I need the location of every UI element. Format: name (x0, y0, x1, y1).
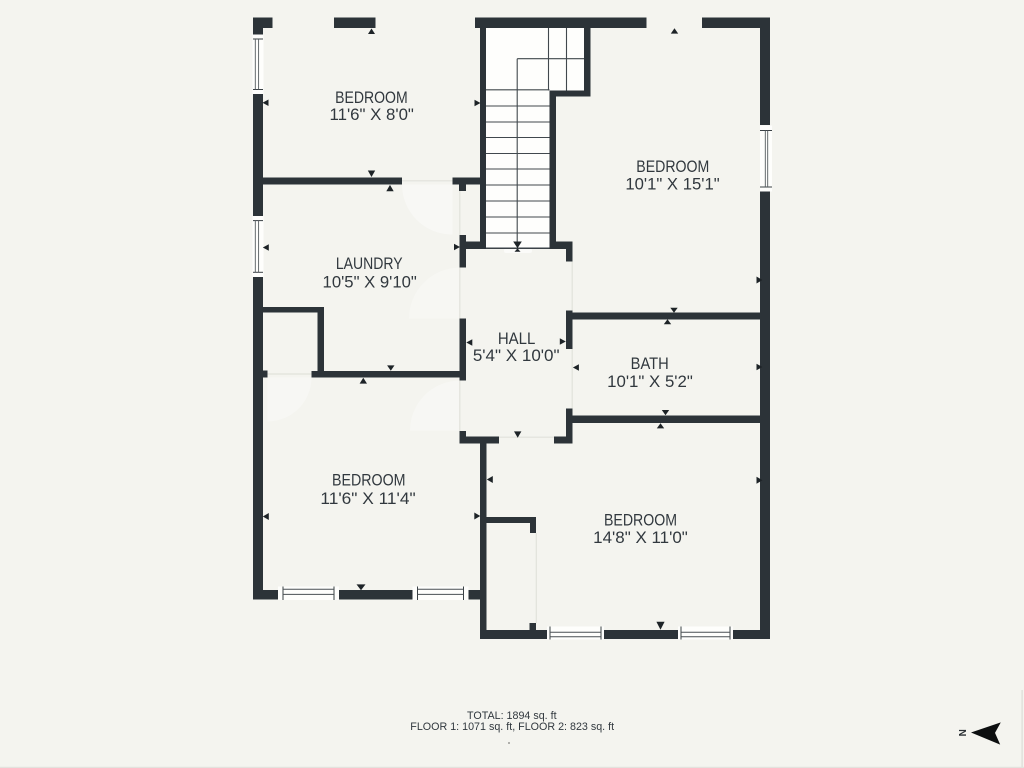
svg-text:N: N (958, 729, 969, 736)
svg-text:HALL: HALL (498, 330, 536, 348)
svg-text:FLOOR 1: 1071 sq. ft, FLOOR 2:: FLOOR 1: 1071 sq. ft, FLOOR 2: 823 sq. f… (410, 721, 614, 733)
svg-text:11'6" X 8'0": 11'6" X 8'0" (330, 106, 415, 124)
svg-text:BEDROOM: BEDROOM (332, 472, 406, 490)
svg-text:BATH: BATH (631, 355, 669, 373)
svg-text:11'6" X 11'4": 11'6" X 11'4" (320, 490, 416, 508)
svg-text:10'1" X 5'2": 10'1" X 5'2" (607, 373, 693, 391)
svg-text:LAUNDRY: LAUNDRY (336, 255, 403, 273)
svg-text:TOTAL: 1894 sq. ft: TOTAL: 1894 sq. ft (467, 710, 557, 722)
svg-text:10'1" X 15'1": 10'1" X 15'1" (625, 175, 720, 193)
svg-text:10'5" X 9'10": 10'5" X 9'10" (323, 273, 418, 291)
svg-text:5'4" X 10'0": 5'4" X 10'0" (473, 347, 560, 365)
svg-text:BEDROOM: BEDROOM (604, 511, 677, 529)
svg-text:BEDROOM: BEDROOM (335, 89, 408, 107)
svg-text:BEDROOM: BEDROOM (636, 158, 709, 176)
svg-text:14'8" X 11'0": 14'8" X 11'0" (593, 529, 688, 547)
